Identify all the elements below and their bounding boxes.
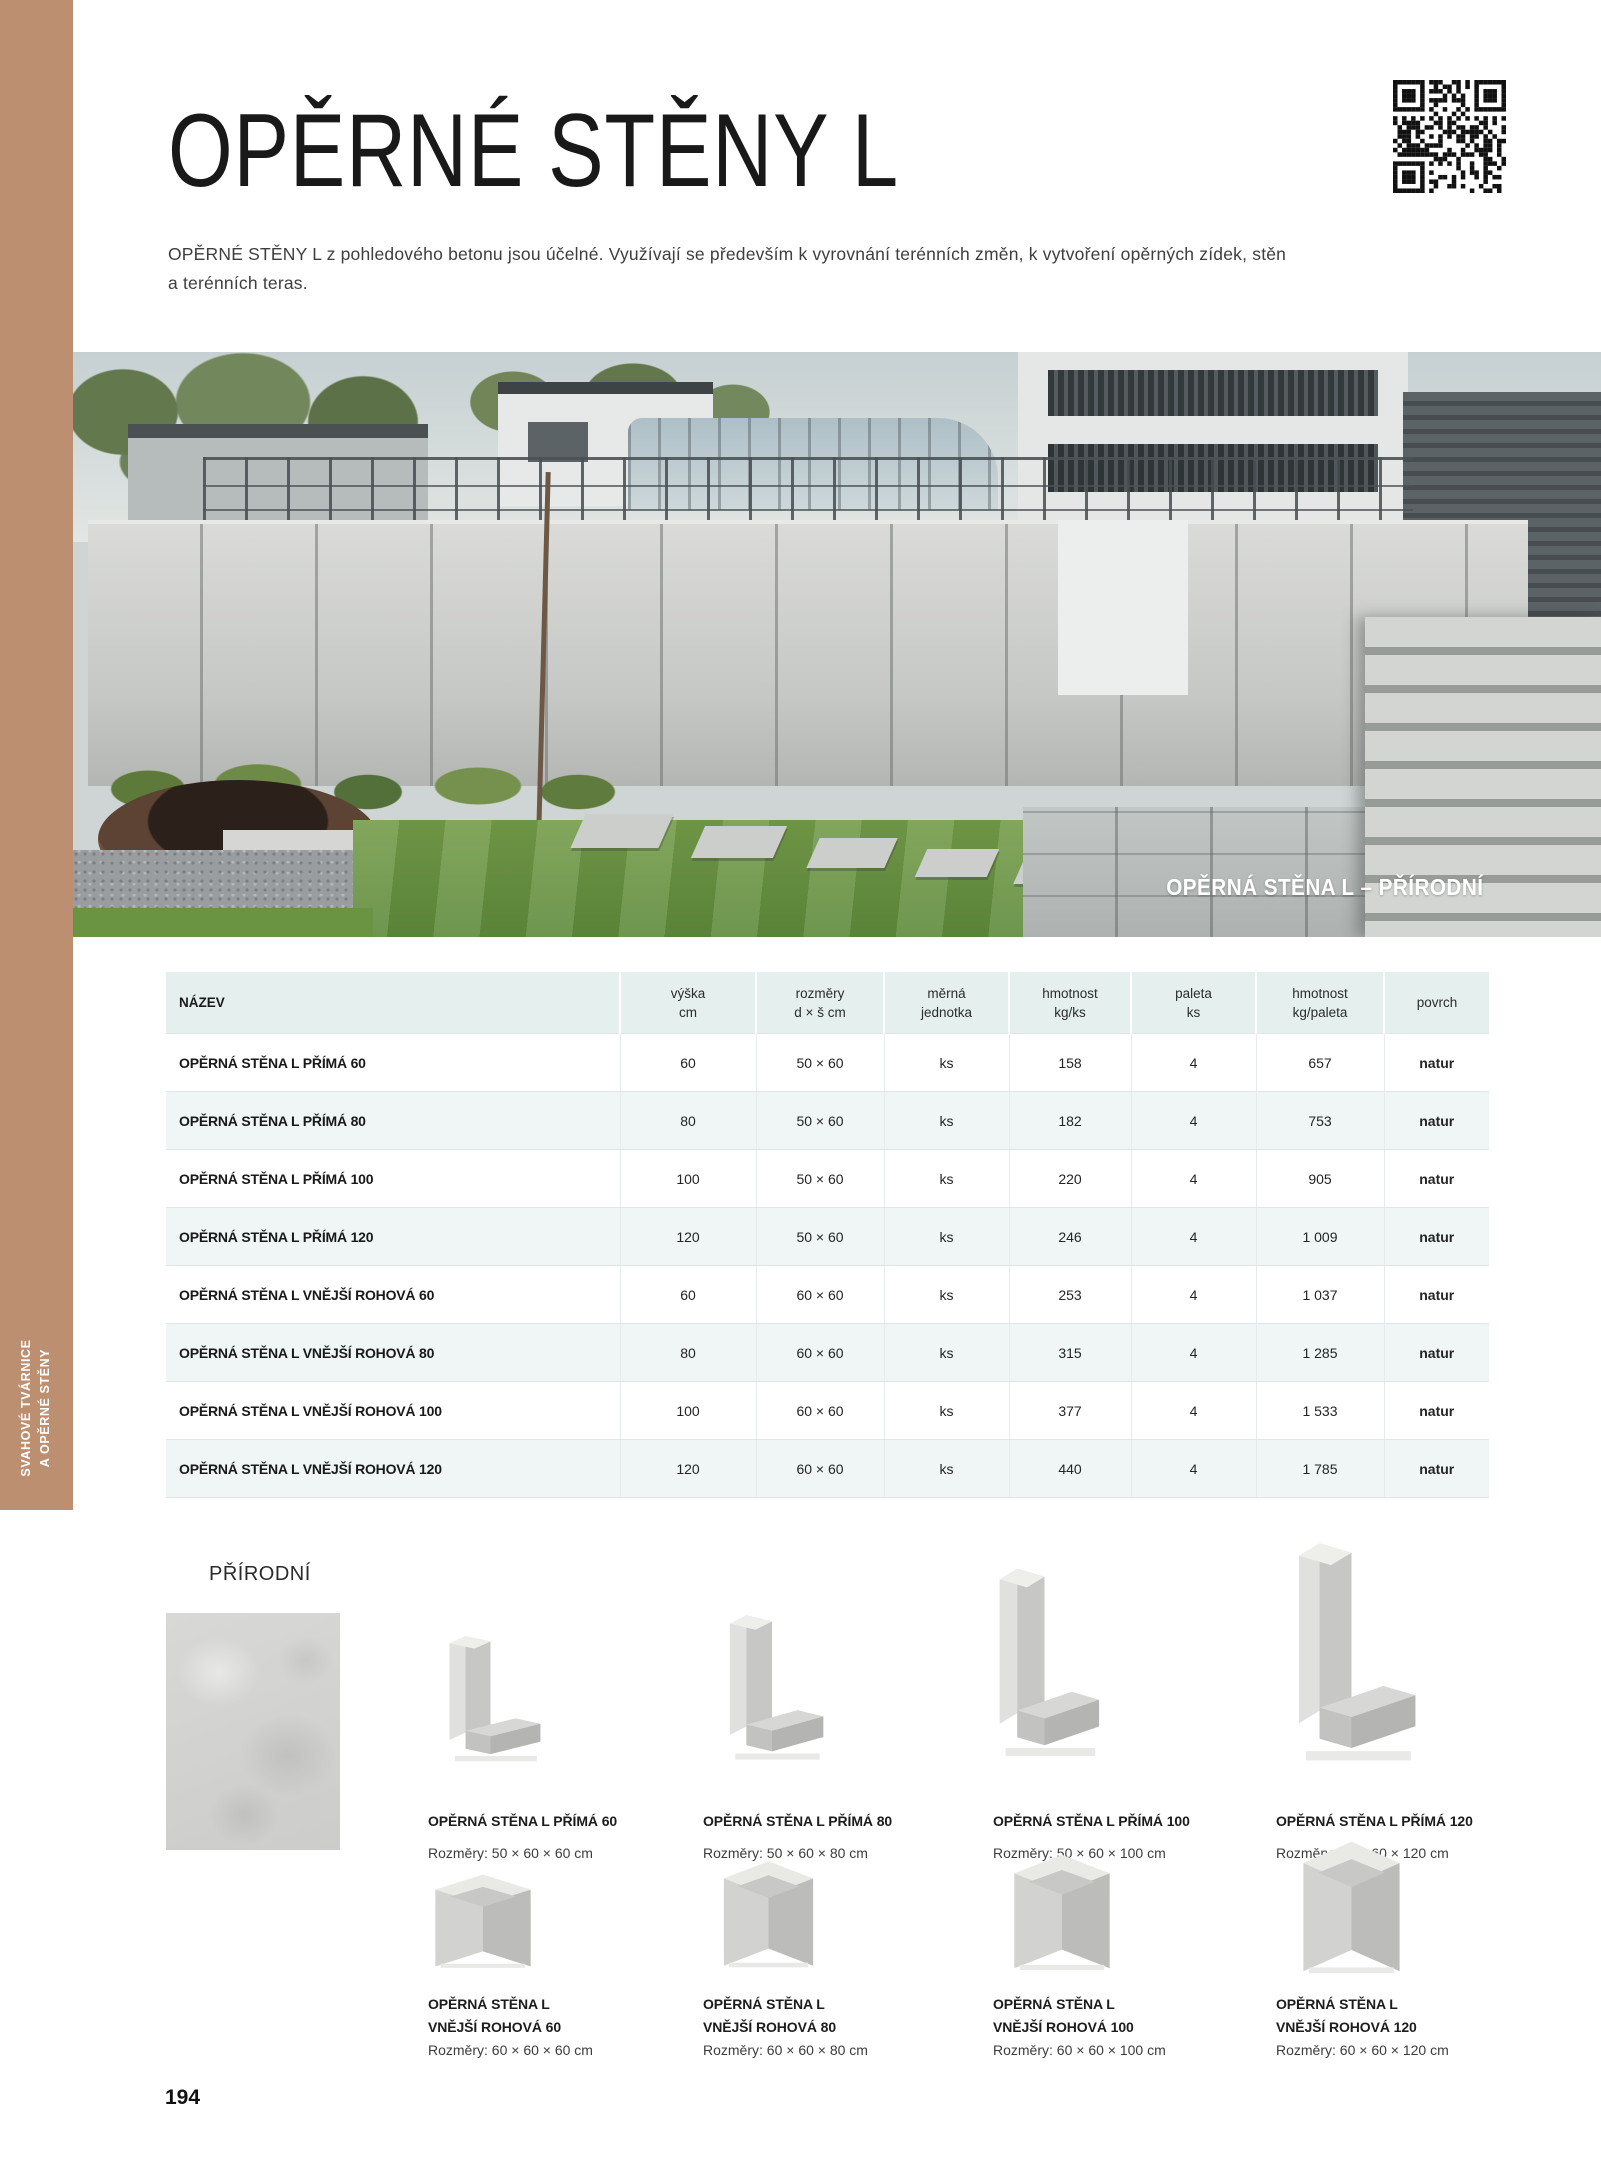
table-cell: 4	[1131, 1440, 1256, 1498]
photo-stepping-stone	[806, 838, 897, 868]
table-cell: 100	[620, 1150, 756, 1208]
col-header-hmotnost-paleta: hmotnostkg/paleta	[1256, 972, 1384, 1034]
product-render-prima-100	[986, 1558, 1103, 1772]
table-cell: 440	[1009, 1440, 1131, 1498]
table-cell: 253	[1009, 1266, 1131, 1324]
section-tab-line2: A OPĚRNÉ STĚNY	[36, 1339, 55, 1476]
product-caption: OPĚRNÁ STĚNA L VNĚJŠÍ ROHOVÁ 80 Rozměry:…	[703, 1993, 978, 2062]
table-cell: ks	[884, 1324, 1009, 1382]
table-row: OPĚRNÁ STĚNA L VNĚJŠÍ ROHOVÁ 12012060 × …	[166, 1440, 1489, 1498]
photo-railing	[203, 457, 1413, 521]
product-render-prima-60	[437, 1629, 544, 1772]
table-cell: OPĚRNÁ STĚNA L VNĚJŠÍ ROHOVÁ 120	[166, 1440, 620, 1498]
product-name: VNĚJŠÍ ROHOVÁ 120	[1276, 2016, 1551, 2039]
product-render-prima-120	[1283, 1531, 1420, 1779]
table-cell: 315	[1009, 1324, 1131, 1382]
table-cell: OPĚRNÁ STĚNA L PŘÍMÁ 100	[166, 1150, 620, 1208]
product-render-rohova-60	[428, 1869, 538, 1972]
table-cell: 50 × 60	[756, 1092, 884, 1150]
product-render-rohova-80	[717, 1855, 820, 1972]
table-cell: ks	[884, 1092, 1009, 1150]
product-name: OPĚRNÁ STĚNA L	[993, 1993, 1268, 2016]
section-color-strip	[0, 0, 73, 1510]
table-row: OPĚRNÁ STĚNA L VNĚJŠÍ ROHOVÁ 606060 × 60…	[166, 1266, 1489, 1324]
table-cell: 80	[620, 1324, 756, 1382]
table-cell: 60 × 60	[756, 1324, 884, 1382]
table-row: OPĚRNÁ STĚNA L PŘÍMÁ 10010050 × 60ks2204…	[166, 1150, 1489, 1208]
table-cell: OPĚRNÁ STĚNA L PŘÍMÁ 60	[166, 1034, 620, 1092]
table-cell: natur	[1384, 1150, 1489, 1208]
col-header-vyska: výškacm	[620, 972, 756, 1034]
table-cell: 246	[1009, 1208, 1131, 1266]
product-name: OPĚRNÁ STĚNA L PŘÍMÁ 80	[703, 1810, 978, 1833]
table-cell: 4	[1131, 1382, 1256, 1440]
product-render-rohova-120	[1296, 1834, 1407, 1979]
table-cell: 657	[1256, 1034, 1384, 1092]
photo-stepping-stone	[915, 849, 999, 877]
table-cell: 50 × 60	[756, 1208, 884, 1266]
photo-window	[1048, 370, 1378, 416]
table-cell: 1 037	[1256, 1266, 1384, 1324]
page-number: 194	[165, 2086, 200, 2110]
product-caption: OPĚRNÁ STĚNA L VNĚJŠÍ ROHOVÁ 100 Rozměry…	[993, 1993, 1268, 2062]
table-cell: 60 × 60	[756, 1440, 884, 1498]
table-cell: OPĚRNÁ STĚNA L VNĚJŠÍ ROHOVÁ 80	[166, 1324, 620, 1382]
table-cell: ks	[884, 1266, 1009, 1324]
hero-photo: OPĚRNÁ STĚNA L – PŘÍRODNÍ	[73, 352, 1601, 937]
table-row: OPĚRNÁ STĚNA L VNĚJŠÍ ROHOVÁ 808060 × 60…	[166, 1324, 1489, 1382]
product-name: OPĚRNÁ STĚNA L	[428, 1993, 703, 2016]
table-cell: 60	[620, 1266, 756, 1324]
table-cell: 753	[1256, 1092, 1384, 1150]
section-tab-label: SVAHOVÉ TVÁRNICE A OPĚRNÉ STĚNY	[17, 1339, 55, 1476]
col-header-rozmery: rozměryd × š cm	[756, 972, 884, 1034]
table-cell: 100	[620, 1382, 756, 1440]
table-cell: 50 × 60	[756, 1150, 884, 1208]
table-cell: natur	[1384, 1208, 1489, 1266]
col-header-hmotnost-ks: hmotnostkg/ks	[1009, 972, 1131, 1034]
table-cell: 4	[1131, 1208, 1256, 1266]
table-cell: 4	[1131, 1266, 1256, 1324]
table-row: OPĚRNÁ STĚNA L VNĚJŠÍ ROHOVÁ 10010060 × …	[166, 1382, 1489, 1440]
table-cell: 1 785	[1256, 1440, 1384, 1498]
product-spec-table: NÁZEV výškacm rozměryd × š cm měrnájedno…	[166, 972, 1489, 1498]
product-caption: OPĚRNÁ STĚNA L PŘÍMÁ 60 Rozměry: 50 × 60…	[428, 1810, 703, 1865]
product-name: VNĚJŠÍ ROHOVÁ 80	[703, 2016, 978, 2039]
table-row: OPĚRNÁ STĚNA L PŘÍMÁ 606050 × 60ks158465…	[166, 1034, 1489, 1092]
table-cell: ks	[884, 1208, 1009, 1266]
table-cell: 60	[620, 1034, 756, 1092]
surface-texture-swatch	[166, 1613, 340, 1850]
table-cell: natur	[1384, 1382, 1489, 1440]
col-header-nazev: NÁZEV	[166, 972, 620, 1034]
product-dims: Rozměry: 60 × 60 × 100 cm	[993, 2039, 1268, 2062]
table-cell: 905	[1256, 1150, 1384, 1208]
photo-window	[528, 422, 588, 462]
col-header-povrch: povrch	[1384, 972, 1489, 1034]
product-name: OPĚRNÁ STĚNA L PŘÍMÁ 120	[1276, 1810, 1551, 1833]
photo-grass	[73, 908, 373, 937]
surface-finish-label: PŘÍRODNÍ	[209, 1563, 311, 1586]
table-cell: ks	[884, 1382, 1009, 1440]
table-header-row: NÁZEV výškacm rozměryd × š cm měrnájedno…	[166, 972, 1489, 1034]
product-name: VNĚJŠÍ ROHOVÁ 60	[428, 2016, 703, 2039]
table-cell: 4	[1131, 1324, 1256, 1382]
table-cell: 120	[620, 1208, 756, 1266]
product-name: OPĚRNÁ STĚNA L	[1276, 1993, 1551, 2016]
product-dims: Rozměry: 50 × 60 × 60 cm	[428, 1842, 703, 1865]
table-cell: 120	[620, 1440, 756, 1498]
col-header-paleta: paletaks	[1131, 972, 1256, 1034]
intro-paragraph: OPĚRNÉ STĚNY L z pohledového betonu jsou…	[168, 240, 1286, 298]
photo-stepping-stone	[570, 814, 673, 848]
product-caption: OPĚRNÁ STĚNA L VNĚJŠÍ ROHOVÁ 60 Rozměry:…	[428, 1993, 703, 2062]
col-header-merna-jednotka: měrnájednotka	[884, 972, 1009, 1034]
table-row: OPĚRNÁ STĚNA L PŘÍMÁ 12012050 × 60ks2464…	[166, 1208, 1489, 1266]
product-caption: OPĚRNÁ STĚNA L VNĚJŠÍ ROHOVÁ 120 Rozměry…	[1276, 1993, 1551, 2062]
table-cell: 80	[620, 1092, 756, 1150]
table-cell: OPĚRNÁ STĚNA L VNĚJŠÍ ROHOVÁ 60	[166, 1266, 620, 1324]
product-dims: Rozměry: 60 × 60 × 80 cm	[703, 2039, 978, 2062]
table-cell: 158	[1009, 1034, 1131, 1092]
table-cell: natur	[1384, 1034, 1489, 1092]
photo-wall-corner	[1058, 520, 1188, 695]
catalog-page: SVAHOVÉ TVÁRNICE A OPĚRNÉ STĚNY OPĚRNÉ S…	[0, 0, 1601, 2160]
product-dims: Rozměry: 60 × 60 × 120 cm	[1276, 2039, 1551, 2062]
table-cell: 50 × 60	[756, 1034, 884, 1092]
product-name: OPĚRNÁ STĚNA L PŘÍMÁ 100	[993, 1810, 1268, 1833]
table-cell: 1 285	[1256, 1324, 1384, 1382]
table-cell: natur	[1384, 1324, 1489, 1382]
qr-code	[1393, 80, 1506, 193]
table-cell: 377	[1009, 1382, 1131, 1440]
product-name: VNĚJŠÍ ROHOVÁ 100	[993, 2016, 1268, 2039]
product-dims: Rozměry: 60 × 60 × 60 cm	[428, 2039, 703, 2062]
table-cell: 4	[1131, 1034, 1256, 1092]
table-row: OPĚRNÁ STĚNA L PŘÍMÁ 808050 × 60ks182475…	[166, 1092, 1489, 1150]
table-cell: ks	[884, 1150, 1009, 1208]
table-cell: 1 533	[1256, 1382, 1384, 1440]
table-cell: 4	[1131, 1150, 1256, 1208]
table-cell: OPĚRNÁ STĚNA L PŘÍMÁ 80	[166, 1092, 620, 1150]
product-name: OPĚRNÁ STĚNA L PŘÍMÁ 60	[428, 1810, 703, 1833]
table-cell: 1 009	[1256, 1208, 1384, 1266]
product-render-rohova-100	[1007, 1848, 1117, 1975]
intro-line1: OPĚRNÉ STĚNY L z pohledového betonu jsou…	[168, 240, 1286, 269]
table-cell: 182	[1009, 1092, 1131, 1150]
table-cell: natur	[1384, 1266, 1489, 1324]
table-cell: 60 × 60	[756, 1382, 884, 1440]
table-cell: ks	[884, 1440, 1009, 1498]
page-title: OPĚRNÉ STĚNY L	[168, 99, 899, 203]
photo-stepping-stone	[691, 826, 787, 858]
product-render-prima-80	[717, 1607, 827, 1772]
table-cell: natur	[1384, 1440, 1489, 1498]
table-cell: natur	[1384, 1092, 1489, 1150]
table-cell: OPĚRNÁ STĚNA L PŘÍMÁ 120	[166, 1208, 620, 1266]
intro-line2: a terénních teras.	[168, 269, 1286, 298]
table-cell: OPĚRNÁ STĚNA L VNĚJŠÍ ROHOVÁ 100	[166, 1382, 620, 1440]
table-cell: 220	[1009, 1150, 1131, 1208]
photo-caption: OPĚRNÁ STĚNA L – PŘÍRODNÍ	[1166, 874, 1483, 901]
product-name: OPĚRNÁ STĚNA L	[703, 1993, 978, 2016]
table-cell: 4	[1131, 1092, 1256, 1150]
table-cell: ks	[884, 1034, 1009, 1092]
section-tab-line1: SVAHOVÉ TVÁRNICE	[17, 1339, 36, 1476]
table-cell: 60 × 60	[756, 1266, 884, 1324]
